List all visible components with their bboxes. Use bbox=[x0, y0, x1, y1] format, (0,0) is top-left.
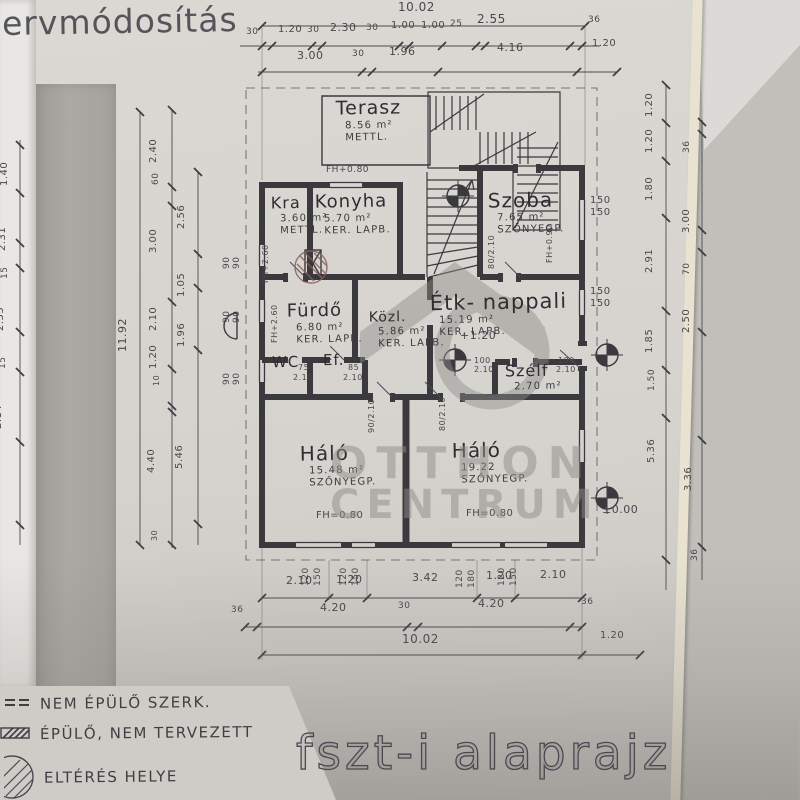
dim-label: 150 bbox=[351, 567, 361, 586]
room-area: 2.70 m² bbox=[505, 380, 562, 392]
legend-label: ÉPÜLŐ, NEM TERVEZETT bbox=[40, 723, 254, 743]
dim-label: 36 bbox=[581, 597, 593, 607]
dim-label: 4.20 bbox=[478, 597, 505, 610]
dim-label: 3.00 bbox=[148, 229, 159, 253]
room-label: Étk- nappali15.19 m²KER. LAPB. bbox=[430, 290, 568, 338]
legend-label: NEM ÉPÜLŐ SZERK. bbox=[40, 693, 211, 713]
dim-label: 150 bbox=[509, 567, 519, 586]
room-area: 6.80 m² bbox=[287, 321, 363, 333]
dim-label: 150 bbox=[590, 298, 611, 309]
dim-label: 30 bbox=[307, 25, 319, 35]
room-floor: SZŐNYEGP. bbox=[488, 223, 564, 235]
room-floor: KER. LAPB. bbox=[315, 224, 391, 236]
room-label: Szoba7.65 m²SZŐNYEGP. bbox=[488, 189, 565, 235]
dim-label: 85 bbox=[348, 363, 359, 372]
dim-label: 15 bbox=[0, 357, 8, 369]
dim-label: 1.20 bbox=[278, 24, 302, 35]
dim-label: 80/2.10 bbox=[438, 397, 447, 431]
dim-label: 2.14 bbox=[0, 405, 4, 429]
dim-label: 180 bbox=[467, 569, 477, 588]
dim-label: 1.40 bbox=[0, 162, 10, 186]
dim-label: 90 bbox=[232, 373, 242, 385]
dim-label: 150 bbox=[313, 567, 323, 586]
dim-label: 1.85 bbox=[644, 329, 655, 353]
dim-label: 4.20 bbox=[320, 601, 347, 614]
legend-item-not-built: NEM ÉPÜLŐ SZERK. bbox=[4, 694, 211, 712]
dim-label: 120 bbox=[339, 567, 349, 586]
drawing-title: fszt-i alaprajz bbox=[296, 726, 671, 781]
dim-label: 15 bbox=[0, 267, 10, 279]
double-line-icon bbox=[4, 697, 30, 709]
dim-label: 2.50 bbox=[681, 309, 692, 333]
dim-label: 2.51 bbox=[0, 472, 2, 496]
dim-label: 1.20 bbox=[600, 630, 624, 641]
dim-label: 2.10 bbox=[148, 307, 159, 331]
dim-label: 90 bbox=[222, 311, 232, 323]
room-floor: KER. LAPB. bbox=[287, 333, 363, 345]
room-label: WC bbox=[272, 355, 300, 371]
room-label: Szélf2.70 m² bbox=[505, 363, 562, 393]
dim-label: 120 bbox=[301, 567, 311, 586]
dim-label: FH+2.60 bbox=[270, 304, 279, 343]
floorplan-layer: 10.02301.20302.30301.001.00252.55363.003… bbox=[0, 0, 800, 800]
room-name: Terasz bbox=[336, 98, 402, 119]
dim-label: 1.00 bbox=[391, 20, 415, 31]
dim-label: 150 bbox=[590, 286, 611, 297]
dim-label: 30 bbox=[150, 530, 159, 541]
room-name: Konyha bbox=[315, 192, 391, 212]
room-label: Ef. bbox=[323, 353, 345, 369]
dim-label: 11.92 bbox=[116, 318, 129, 352]
dim-label: 4.40 bbox=[146, 449, 157, 473]
dim-label: 100 bbox=[474, 356, 491, 365]
dim-label: 2.10 bbox=[474, 365, 494, 374]
dim-label: 3.42 bbox=[412, 571, 439, 584]
dim-label: FH+0.80 bbox=[326, 165, 369, 175]
dim-label: 36 bbox=[682, 141, 692, 153]
dim-label: 30 bbox=[398, 601, 410, 611]
dim-label: 90/2.10 bbox=[367, 399, 376, 433]
dim-label: 2.55 bbox=[477, 12, 506, 26]
dim-label: 30 bbox=[352, 49, 364, 59]
room-name: Szélf bbox=[505, 363, 562, 381]
hatched-circle-icon bbox=[4, 754, 34, 800]
dim-label: 120 bbox=[497, 567, 507, 586]
dim-label: 2.10 bbox=[343, 373, 363, 382]
dim-label: 10.02 bbox=[402, 632, 439, 646]
room-label: Konyha5.70 m²KER. LAPB. bbox=[315, 192, 391, 236]
dim-label: 5.36 bbox=[646, 439, 657, 463]
dim-label: 1.20 bbox=[148, 345, 159, 369]
dim-label: 2.55 bbox=[0, 307, 6, 331]
page-title: ervmódosítás bbox=[2, 0, 238, 43]
room-floor: METTL. bbox=[336, 131, 402, 143]
dim-label: 2.40 bbox=[148, 139, 159, 163]
dim-label: 2.91 bbox=[644, 249, 655, 273]
room-floor: KER. LAPB. bbox=[369, 337, 445, 349]
room-name: WC bbox=[272, 355, 300, 371]
dim-label: 90 bbox=[232, 311, 242, 323]
dim-label: 1.80 bbox=[644, 177, 655, 201]
dim-label: 30 bbox=[366, 23, 378, 33]
dim-label: 10.02 bbox=[398, 0, 435, 14]
scanned-floorplan-photo: 10.02301.20302.30301.001.00252.55363.003… bbox=[0, 0, 800, 800]
dim-label: 60 bbox=[151, 173, 161, 185]
dim-label: 1.20 bbox=[644, 129, 655, 153]
dim-label: 1.20 bbox=[644, 93, 655, 117]
dim-label: 2.10 bbox=[293, 373, 313, 382]
dim-label: 2.31 bbox=[0, 227, 8, 251]
dim-label: 3.00 bbox=[297, 49, 324, 62]
dim-label: 2.10 bbox=[540, 568, 567, 581]
dim-label: 90 bbox=[232, 257, 242, 269]
dim-label: 1.96 bbox=[389, 45, 416, 58]
room-area: 8.56 m² bbox=[336, 119, 402, 131]
dim-label: 1.05 bbox=[176, 273, 187, 297]
dim-label: 75 bbox=[298, 363, 309, 372]
dim-label: 150 bbox=[590, 207, 611, 218]
legend-item-deviation: ELTÉRÉS HELYE bbox=[4, 754, 178, 800]
dim-label: 5.46 bbox=[174, 445, 185, 469]
room-area: 5.70 m² bbox=[315, 212, 391, 224]
room-label: Fürdő6.80 m²KER. LAPB. bbox=[287, 301, 363, 345]
room-name: Szoba bbox=[488, 189, 565, 211]
dim-label: 30 bbox=[246, 27, 258, 37]
dim-label: 3.00 bbox=[681, 209, 692, 233]
dim-label: 2.56 bbox=[176, 205, 187, 229]
dim-label: 1.20 bbox=[592, 38, 616, 49]
dim-label: 4.16 bbox=[497, 41, 524, 54]
room-name: Étk- nappali bbox=[430, 290, 568, 314]
room-area: 7.65 m² bbox=[488, 211, 564, 223]
dim-label: ±0.00 bbox=[602, 503, 638, 516]
hatched-bar-icon bbox=[0, 726, 30, 740]
dim-label: 2.30 bbox=[330, 21, 357, 34]
dim-label: 150 bbox=[590, 195, 611, 206]
dim-label: 36 bbox=[588, 15, 600, 25]
legend-item-built-unplanned: ÉPÜLŐ, NEM TERVEZETT bbox=[0, 724, 253, 742]
dim-label: 90 bbox=[222, 373, 232, 385]
dim-label: 80/2.10 bbox=[487, 235, 496, 269]
dim-label: 25 bbox=[450, 19, 462, 29]
dim-label: 1.96 bbox=[176, 323, 187, 347]
dim-label: 70 bbox=[682, 263, 692, 275]
dim-label: 90 bbox=[222, 257, 232, 269]
dim-label: 1.00 bbox=[421, 20, 445, 31]
dim-label: 1.50 bbox=[647, 369, 657, 391]
room-name: Ef. bbox=[323, 353, 345, 369]
watermark-text-line2: CENTRUM bbox=[330, 482, 600, 528]
dim-label: 3.36 bbox=[683, 467, 694, 491]
legend-label: ELTÉRÉS HELYE bbox=[44, 767, 178, 786]
dim-label: 120 bbox=[455, 569, 465, 588]
room-name: Fürdő bbox=[287, 301, 363, 321]
dim-label: 10 bbox=[152, 375, 161, 386]
dim-label: 36 bbox=[690, 549, 700, 561]
dim-label: FH+2.60 bbox=[261, 244, 270, 283]
room-label: Terasz8.56 m²METTL. bbox=[336, 98, 402, 143]
dim-label: 36 bbox=[231, 605, 243, 615]
